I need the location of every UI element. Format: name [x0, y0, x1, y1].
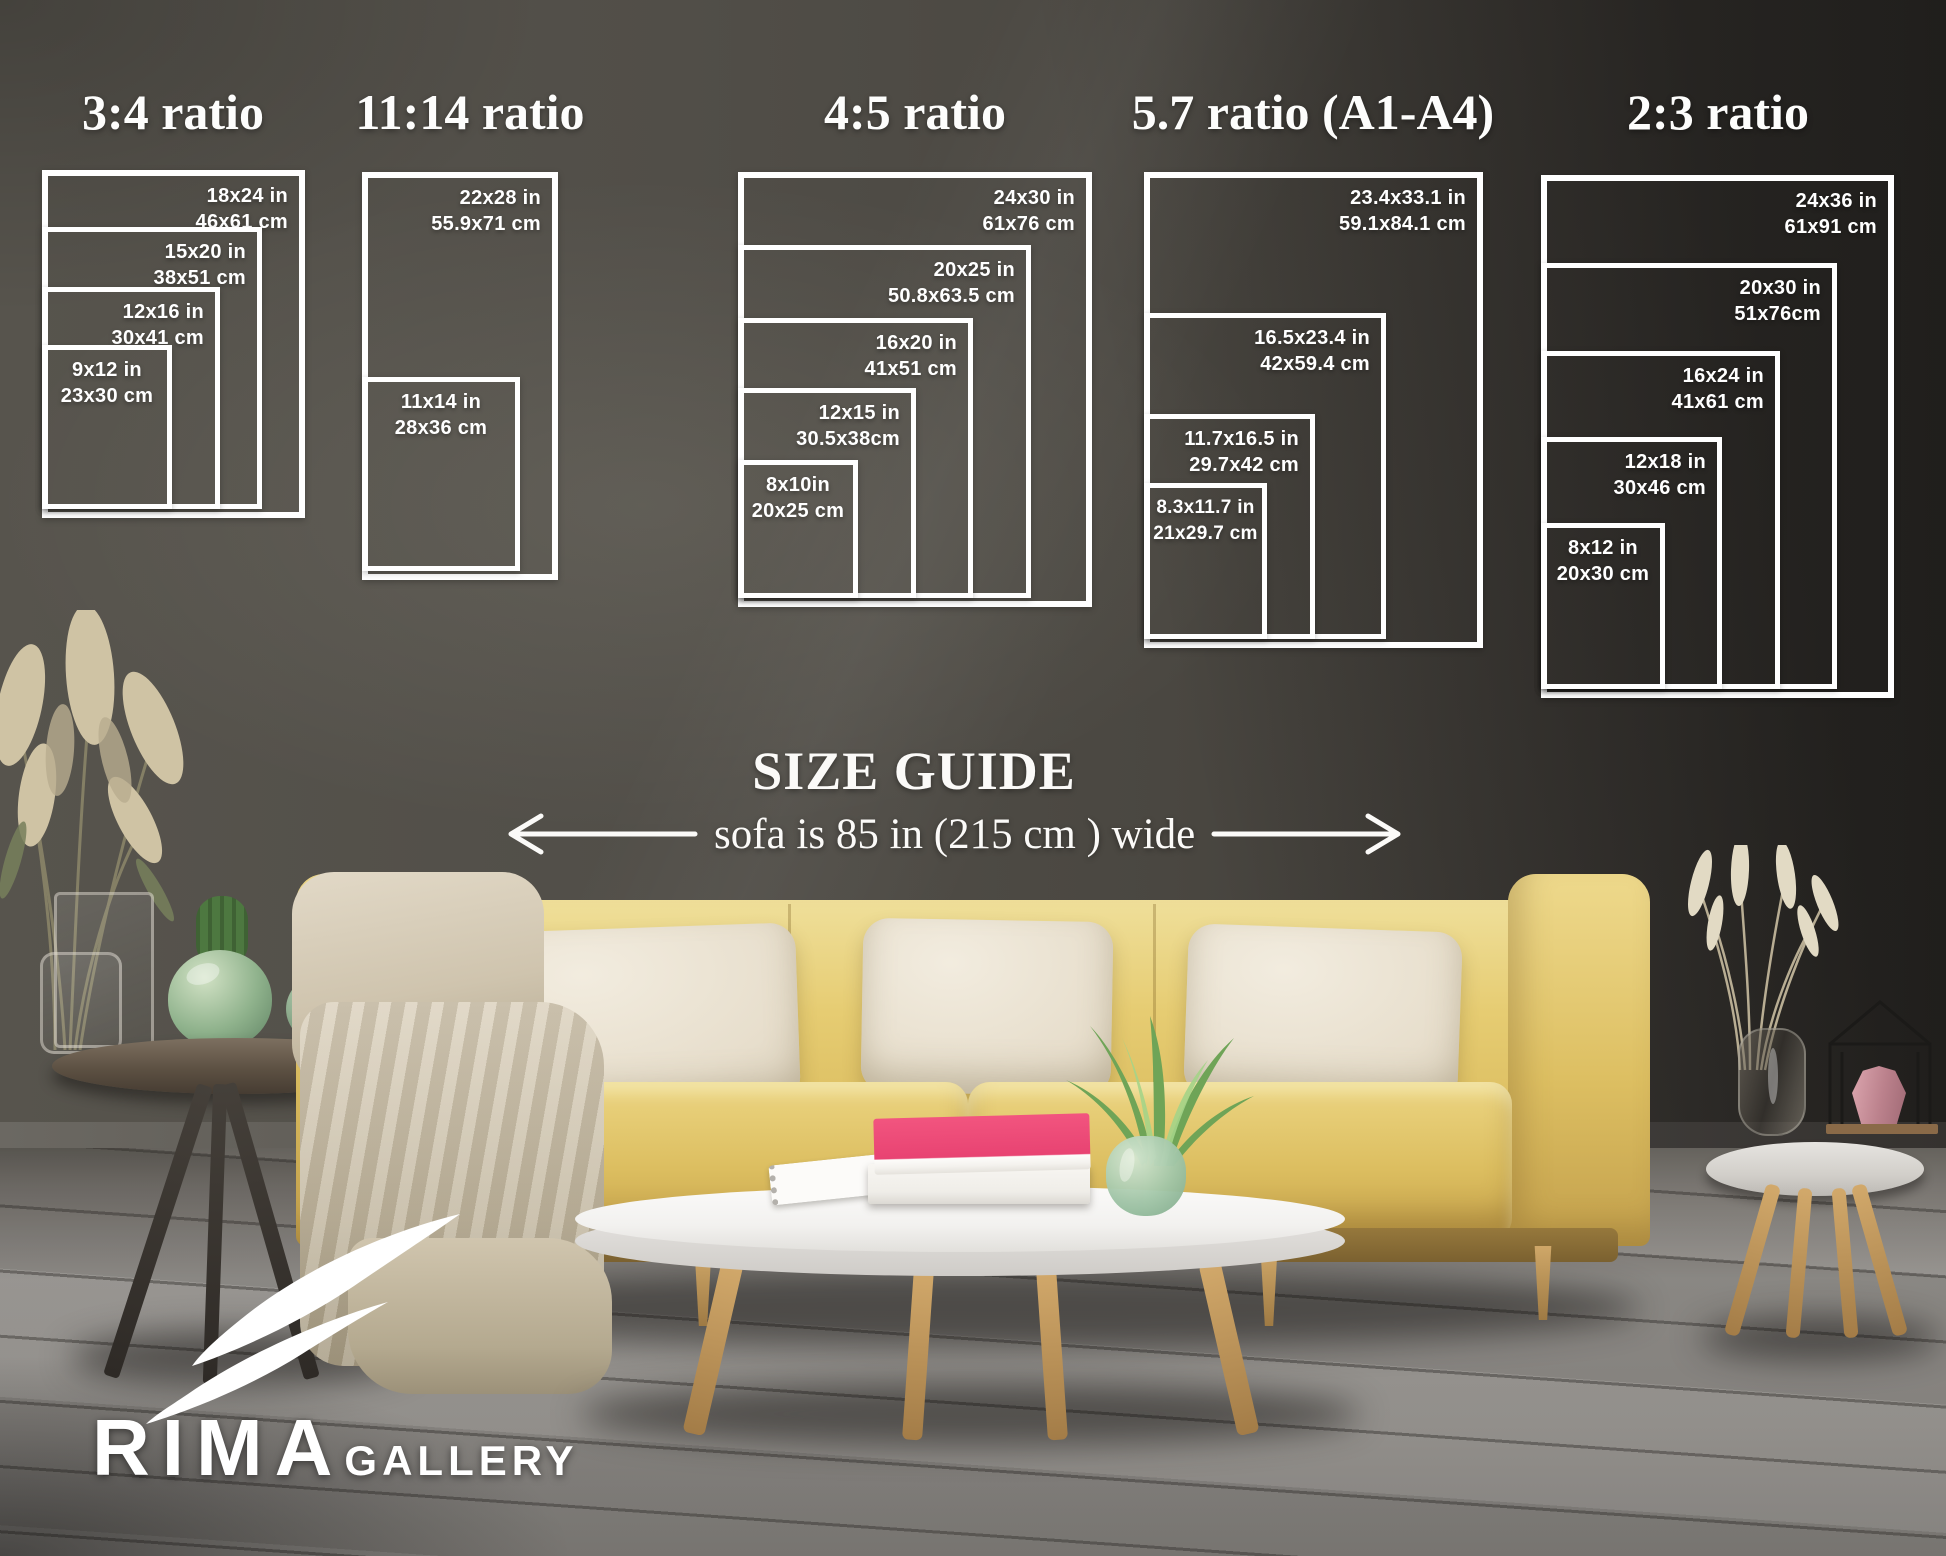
- frame-label: 8x10in20x25 cm: [743, 472, 853, 524]
- frame-label: 20x25 in50.8x63.5 cm: [888, 257, 1015, 309]
- frame-label: 12x18 in30x46 cm: [1614, 449, 1706, 501]
- frame-9x12: 9x12 in23x30 cm: [42, 345, 172, 509]
- frame-label: 12x16 in30x41 cm: [112, 299, 204, 351]
- plant-vase: [1106, 1136, 1186, 1216]
- swoosh-icon: [138, 1212, 468, 1424]
- frame-label: 16x24 in41x61 cm: [1672, 363, 1764, 415]
- sofa-width-note: sofa is 85 in (215 cm ) wide: [495, 806, 1445, 862]
- frame-8x12: 8x12 in20x30 cm: [1541, 523, 1665, 689]
- ratio-group-4-5: 24x30 in61x76 cm 20x25 in50.8x63.5 cm 16…: [738, 172, 1092, 607]
- frame-label: 15x20 in38x51 cm: [154, 239, 246, 291]
- frame-label: 8x12 in20x30 cm: [1546, 535, 1660, 587]
- scene: 3:4 ratio 11:14 ratio 4:5 ratio 5.7 rati…: [0, 0, 1946, 1556]
- frame-label: 16x20 in41x51 cm: [865, 330, 957, 382]
- right-arrow-icon: [1209, 806, 1414, 862]
- frame-label: 8.3x11.7 in21x29.7 cm: [1149, 495, 1262, 547]
- left-arrow-icon: [495, 806, 700, 862]
- frame-8x10: 8x10in20x25 cm: [738, 460, 858, 598]
- ratio-title-4-5: 4:5 ratio: [824, 82, 1006, 142]
- ratio-title-2-3: 2:3 ratio: [1627, 82, 1809, 142]
- ratio-group-5-7: 23.4x33.1 in59.1x84.1 cm 16.5x23.4 in42x…: [1144, 172, 1483, 648]
- sofa-arm-right: [1508, 874, 1650, 1246]
- frame-label: 23.4x33.1 in59.1x84.1 cm: [1339, 185, 1466, 237]
- frame-label: 9x12 in23x30 cm: [47, 357, 167, 409]
- brand-logo: RIMA GALLERY: [92, 1408, 579, 1488]
- ratio-title-3-4: 3:4 ratio: [82, 82, 264, 142]
- frame-label: 24x36 in61x91 cm: [1785, 188, 1877, 240]
- frame-label: 24x30 in61x76 cm: [983, 185, 1075, 237]
- brand-name-secondary: GALLERY: [344, 1437, 578, 1485]
- terrarium: [54, 892, 154, 1048]
- frame-label: 22x28 in55.9x71 cm: [431, 185, 541, 237]
- ratio-group-11-14: 22x28 in55.9x71 cm 11x14 in28x36 cm: [362, 172, 558, 580]
- green-vase-large: [168, 950, 272, 1048]
- frame-label: 11x14 in28x36 cm: [367, 389, 515, 441]
- ratio-group-3-4: 18x24 in46x61 cm 15x20 in38x51 cm 12x16 …: [42, 170, 305, 518]
- wood-slab: [1826, 1124, 1938, 1134]
- frame-11x14: 11x14 in28x36 cm: [362, 377, 520, 571]
- frame-8-3x11-7: 8.3x11.7 in21x29.7 cm: [1144, 483, 1267, 639]
- sofa-width-text: sofa is 85 in (215 cm ) wide: [714, 810, 1195, 859]
- ratio-title-5-7: 5.7 ratio (A1-A4): [1132, 82, 1494, 142]
- frame-label: 20x30 in51x76cm: [1734, 275, 1821, 327]
- ratio-title-11-14: 11:14 ratio: [355, 82, 584, 142]
- frame-label: 16.5x23.4 in42x59.4 cm: [1254, 325, 1370, 377]
- size-guide-heading: SIZE GUIDE: [614, 740, 1214, 802]
- ratio-group-2-3: 24x36 in61x91 cm 20x30 in51x76cm 16x24 i…: [1541, 175, 1894, 698]
- brand-name-primary: RIMA: [92, 1408, 344, 1488]
- glass-vase: [1738, 1028, 1806, 1136]
- frame-label: 11.7x16.5 in29.7x42 cm: [1184, 426, 1299, 478]
- frame-label: 12x15 in30.5x38cm: [796, 400, 900, 452]
- stool-top: [1706, 1142, 1924, 1196]
